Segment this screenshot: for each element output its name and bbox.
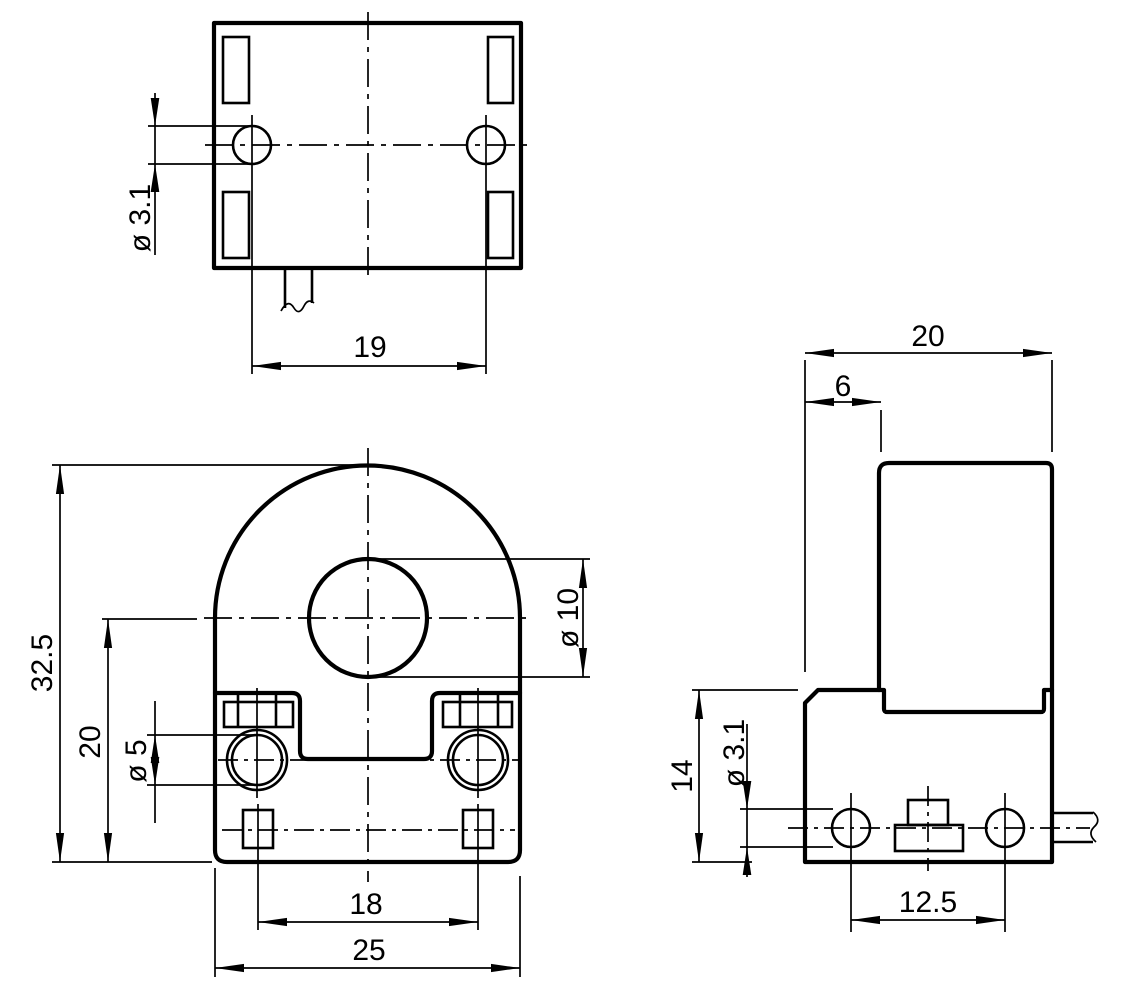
drawing-background [0, 0, 1134, 1004]
dim-label-pin-pitch: 18 [349, 888, 382, 921]
dim-label-top-hole-diameter: ø 3.1 [124, 184, 157, 252]
technical-drawing: ø 3.1 19 [0, 0, 1134, 1004]
dimensional-drawing-page: ø 3.1 19 [0, 0, 1134, 1004]
dim-label-front-width: 25 [352, 934, 385, 967]
dim-label-side-hole-diameter: ø 3.1 [718, 719, 751, 787]
dim-label-side-offset: 6 [835, 370, 852, 403]
dim-label-top-hole-pitch: 19 [353, 331, 386, 364]
dim-label-bore-diameter: ø 10 [552, 588, 585, 648]
dim-label-front-height: 32.5 [26, 634, 59, 692]
dim-label-base-height: 14 [666, 759, 699, 792]
dim-label-front-center-height: 20 [74, 725, 107, 758]
dim-label-screw-diameter: ø 5 [120, 739, 153, 782]
dim-label-side-hole-pitch: 12.5 [899, 886, 957, 919]
dim-label-side-depth: 20 [911, 320, 944, 353]
